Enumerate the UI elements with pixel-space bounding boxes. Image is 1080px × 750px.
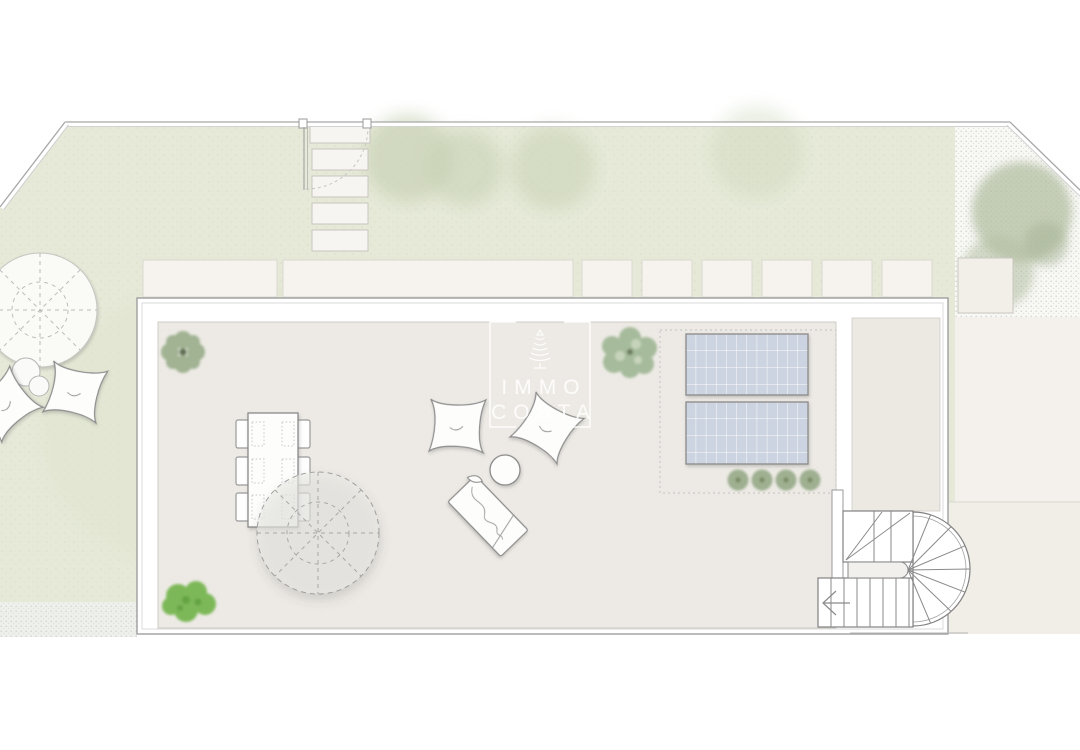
floor-plan: IMMO COSTA	[0, 0, 1080, 750]
stair-void-slot	[848, 562, 908, 578]
watermark-line1: IMMO	[501, 376, 586, 399]
round-side-table	[490, 455, 520, 485]
stepping-stones	[310, 122, 370, 251]
table-parasol	[257, 472, 379, 594]
solar-panel-1	[686, 334, 808, 395]
terrace-right-room-floor	[852, 318, 940, 511]
solar-panel-2	[686, 402, 808, 464]
gravel-strip-bottom-left	[0, 602, 137, 637]
watermark-line2: COSTA	[491, 401, 597, 424]
corner-paver	[958, 258, 1013, 313]
floor-plan-drawing: IMMO COSTA	[0, 0, 1080, 750]
stair-wall	[832, 490, 843, 578]
